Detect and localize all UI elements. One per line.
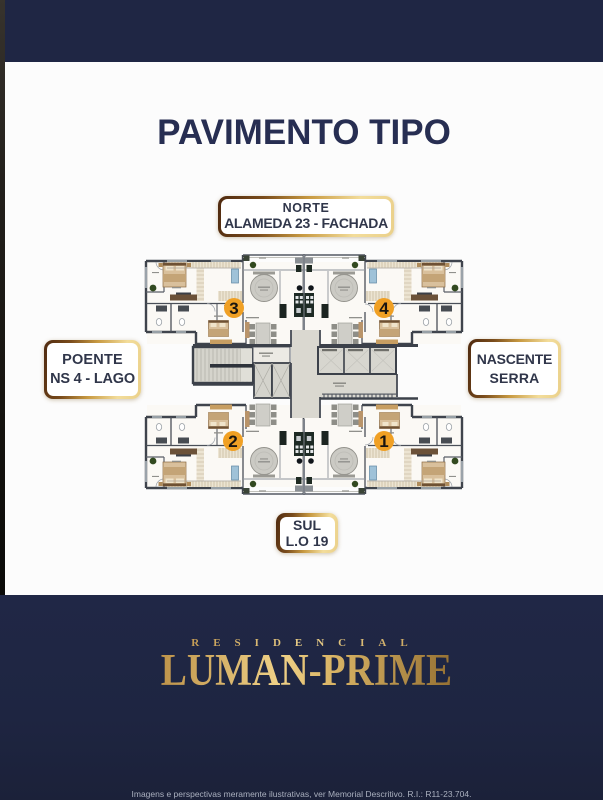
svg-text:4: 4 [379,299,389,318]
svg-text:2: 2 [228,432,237,451]
svg-text:1: 1 [379,432,388,451]
svg-text:3: 3 [229,299,238,318]
